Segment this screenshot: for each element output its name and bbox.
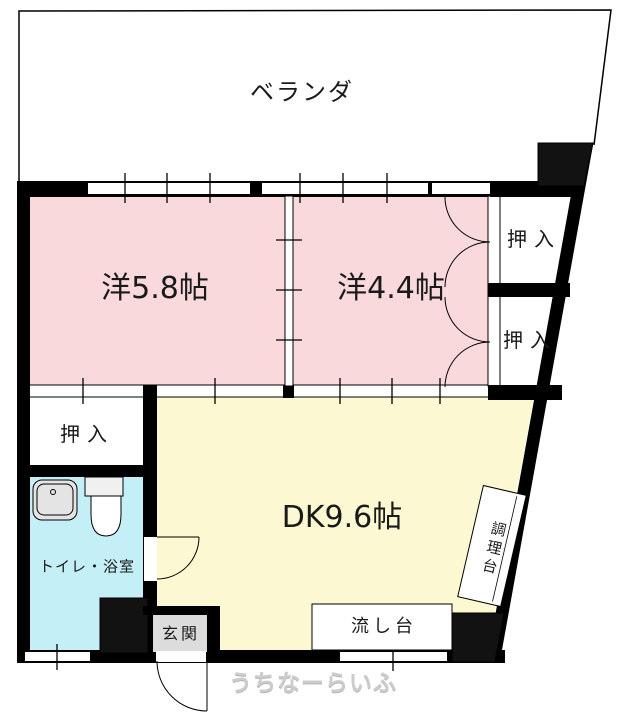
wall-closet-left-bottom — [17, 465, 157, 477]
sink-counter-label: 流し台 — [351, 618, 417, 636]
closet-right-bottom-label: 押入 — [503, 330, 557, 350]
window-top-3 — [432, 183, 490, 194]
floor-plan: ベランダ 洋5.8帖 洋4.4帖 押入 押入 押入 トイレ・浴室 DK9.6帖 … — [0, 0, 624, 721]
closet-right-top-label: 押入 — [507, 229, 561, 249]
wall-left — [17, 181, 30, 663]
door-opening-bathroom — [144, 537, 157, 581]
wall-closet-bottom — [488, 385, 562, 400]
wall-genkan-right — [207, 615, 220, 652]
window-top-2 — [262, 183, 428, 194]
floor-plan-drawing — [0, 0, 624, 721]
wall-genkan-top — [143, 606, 220, 615]
pillar-entrance — [100, 598, 148, 653]
veranda-label: ベランダ — [250, 80, 354, 104]
wall-closet-top — [490, 185, 578, 197]
bathtub-icon — [33, 480, 77, 520]
door-arc-entrance — [157, 661, 207, 711]
closet-left-label: 押入 — [60, 424, 114, 444]
watermark: うちなーらいふ — [229, 673, 397, 696]
partition-fusuma — [285, 196, 293, 386]
pillar — [283, 385, 294, 398]
pillar — [143, 385, 157, 398]
door-opening-entrance — [156, 651, 206, 662]
entrance-label: 玄関 — [162, 626, 200, 642]
western-room-small-label: 洋4.4帖 — [337, 274, 445, 304]
dining-kitchen-label: DK9.6帖 — [282, 503, 402, 533]
sliding-door-band — [29, 385, 500, 397]
window-top-1 — [88, 183, 250, 194]
western-room-large-label: 洋5.8帖 — [101, 274, 209, 304]
pillar-top-right — [538, 143, 593, 186]
bathroom-label: トイレ・浴室 — [39, 560, 135, 575]
wall-closet-middle — [488, 283, 570, 297]
pillar-bottom-right — [452, 613, 504, 662]
